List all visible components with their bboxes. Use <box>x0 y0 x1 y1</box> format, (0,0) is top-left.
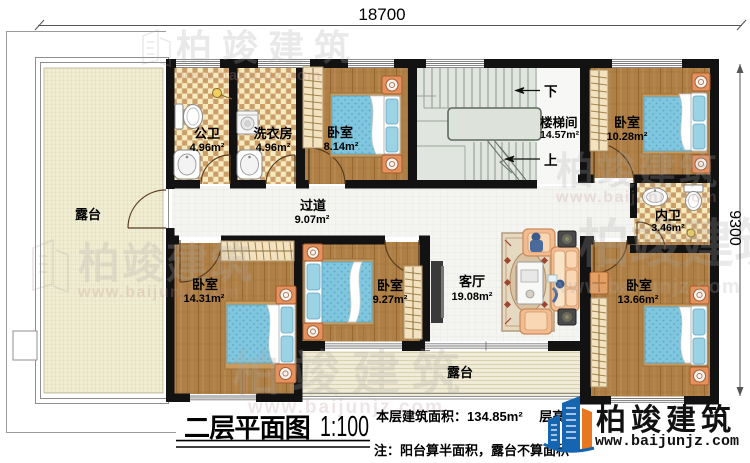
svg-text:卧室: 卧室 <box>626 278 652 293</box>
svg-text:10.28m²: 10.28m² <box>607 131 648 143</box>
svg-text:柏竣建筑: 柏竣建筑 <box>556 151 720 193</box>
svg-text:露台: 露台 <box>447 365 473 380</box>
svg-text:13.66m²: 13.66m² <box>618 294 659 306</box>
svg-text:内卫: 内卫 <box>655 208 681 223</box>
svg-text:3.46m²: 3.46m² <box>651 222 685 234</box>
svg-text:柏竣建筑: 柏竣建筑 <box>78 240 254 287</box>
svg-text:8.14m²: 8.14m² <box>324 141 359 153</box>
svg-text:柏竣建筑: 柏竣建筑 <box>176 27 360 68</box>
svg-text:卧室: 卧室 <box>327 125 353 140</box>
svg-text:卧室: 卧室 <box>192 277 218 292</box>
svg-text:www.baijunjz.com: www.baijunjz.com <box>555 189 718 206</box>
svg-text:19.08m²: 19.08m² <box>452 291 493 303</box>
svg-text:注：阳台算半面积，露台不算面积: 注：阳台算半面积，露台不算面积 <box>374 443 569 458</box>
svg-text:客厅: 客厅 <box>459 274 485 289</box>
svg-text:9.27m²: 9.27m² <box>373 294 408 306</box>
svg-text:14.57m²: 14.57m² <box>540 129 580 141</box>
svg-text:卧室: 卧室 <box>377 278 403 293</box>
svg-text:卧室: 卧室 <box>614 115 640 130</box>
svg-text:1:100: 1:100 <box>320 411 369 443</box>
svg-text:4.96m²: 4.96m² <box>190 142 225 154</box>
svg-text:二层平面图: 二层平面图 <box>184 413 310 443</box>
svg-text:本层建筑面积：134.85m² 层高:: 本层建筑面积：134.85m² 层高: <box>376 409 570 424</box>
svg-text:洗衣房: 洗衣房 <box>253 126 292 141</box>
svg-text:上: 上 <box>544 153 558 168</box>
svg-text:4.96m²: 4.96m² <box>256 142 291 154</box>
svg-text:柏竣建筑: 柏竣建筑 <box>232 348 472 401</box>
svg-text:露台: 露台 <box>75 207 101 222</box>
svg-text:柏竣建筑: 柏竣建筑 <box>596 403 736 437</box>
svg-text:公卫: 公卫 <box>194 126 220 141</box>
svg-text:14.31m²: 14.31m² <box>184 293 225 305</box>
svg-text:18700: 18700 <box>358 5 405 24</box>
svg-text:过道: 过道 <box>300 198 326 213</box>
svg-text:下: 下 <box>544 84 558 99</box>
svg-text:楼梯间: 楼梯间 <box>540 115 578 130</box>
svg-text:9.07m²: 9.07m² <box>295 214 330 226</box>
svg-text:www.baijunjz.com: www.baijunjz.com <box>175 67 321 84</box>
svg-text:9300: 9300 <box>726 210 743 246</box>
svg-text:www.baijunjz.com: www.baijunjz.com <box>595 433 739 450</box>
